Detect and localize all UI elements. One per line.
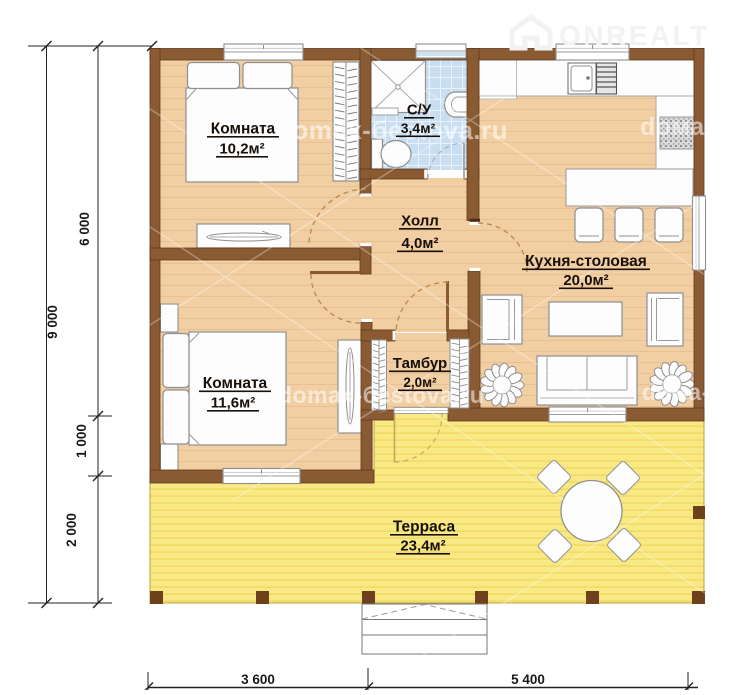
svg-text:4,0м²: 4,0м² — [402, 235, 439, 252]
svg-text:20,0м²: 20,0м² — [563, 272, 608, 289]
svg-text:10,2м²: 10,2м² — [219, 141, 264, 158]
svg-text:Холл: Холл — [401, 213, 439, 230]
svg-text:ONREALT: ONREALT — [559, 20, 710, 51]
svg-text:domax-бestova.ru: domax-бestova.ru — [278, 382, 484, 408]
svg-text:11,6м²: 11,6м² — [211, 395, 255, 412]
svg-text:2 000: 2 000 — [64, 513, 79, 547]
svg-text:Терраса: Терраса — [393, 519, 456, 536]
svg-text:3 600: 3 600 — [241, 672, 275, 687]
svg-text:1 000: 1 000 — [74, 424, 89, 458]
svg-text:domax-бestova.ru: domax-бestova.ru — [276, 115, 508, 145]
svg-text:doма-бe: doма-бe — [640, 113, 740, 141]
svg-text:2,0м²: 2,0м² — [403, 375, 437, 390]
svg-text:Комната: Комната — [211, 121, 276, 138]
svg-text:3,4м²: 3,4м² — [401, 120, 436, 136]
svg-text:Тамбур: Тамбур — [393, 355, 447, 372]
svg-text:doма-бe: doма-бe — [642, 379, 738, 405]
svg-text:Кухня-столовая: Кухня-столовая — [525, 253, 647, 270]
svg-text:Комната: Комната — [203, 375, 268, 392]
svg-text:5 400: 5 400 — [511, 672, 545, 687]
svg-text:9 000: 9 000 — [45, 305, 60, 339]
svg-text:6 000: 6 000 — [77, 212, 92, 246]
svg-text:23,4м²: 23,4м² — [400, 538, 445, 555]
svg-text:С/У: С/У — [407, 102, 432, 119]
